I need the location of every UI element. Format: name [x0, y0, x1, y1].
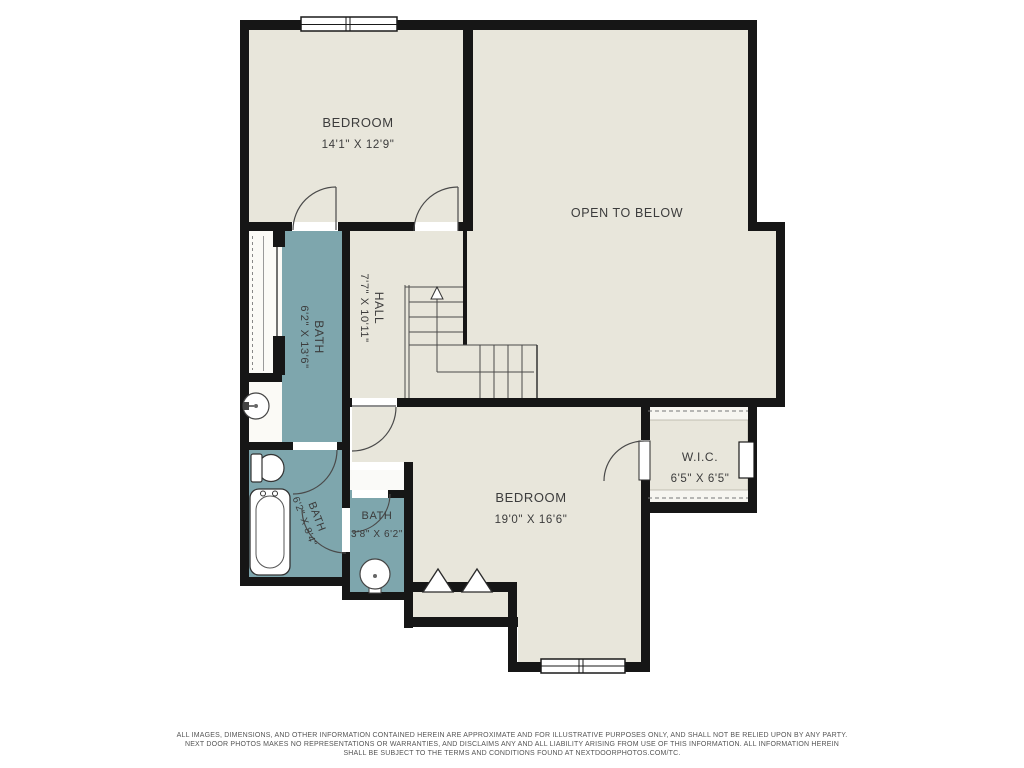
room-dims: 6'5" X 6'5" [671, 473, 730, 485]
room-label: BEDROOM [495, 490, 566, 505]
wic-strip-top [648, 407, 748, 420]
bath-small-doorway [352, 490, 388, 498]
open-to-below-area-ext [748, 230, 776, 398]
disclaimer-line: ALL IMAGES, DIMENSIONS, AND OTHER INFORM… [0, 731, 1024, 740]
room-dims: 19'0" X 16'6" [495, 514, 568, 526]
wic-strip-bottom [648, 490, 748, 502]
window-wic [739, 442, 754, 478]
room-dims: 6'2" X 13'6" [298, 305, 310, 368]
vanity-sink-icon [243, 393, 269, 419]
room-label: HALL [372, 292, 386, 324]
room-dims: 14'1" X 12'9" [322, 139, 395, 151]
room-label: W.I.C. [682, 450, 718, 464]
room-dims: 3'8" X 6'2" [351, 529, 403, 540]
room-label: OPEN TO BELOW [571, 206, 683, 220]
floor-plan-svg: BEDROOM 14'1" X 12'9" OPEN TO BELOW HALL… [0, 0, 1024, 768]
window-bottom [541, 659, 625, 673]
disclaimer-footer: ALL IMAGES, DIMENSIONS, AND OTHER INFORM… [0, 731, 1024, 758]
window-top [301, 17, 397, 31]
bathtub-icon [250, 489, 290, 575]
bedroom-top-doorway [415, 222, 458, 231]
bath-main-doorway [292, 222, 338, 231]
floor-plan-page: BEDROOM 14'1" X 12'9" OPEN TO BELOW HALL… [0, 0, 1024, 768]
bath-main-area [282, 231, 342, 442]
disclaimer-line: SHALL BE SUBJECT TO THE TERMS AND CONDIT… [0, 749, 1024, 758]
disclaimer-line: NEXT DOOR PHOTOS MAKES NO REPRESENTATION… [0, 740, 1024, 749]
toilet-icon [251, 454, 284, 482]
bath-divider-doorway [293, 442, 337, 450]
room-dims: 7'7" X 10'11" [358, 273, 370, 342]
door-leaf [639, 441, 650, 480]
room-label: BATH [312, 320, 326, 354]
bath-small-vestibule [350, 470, 404, 490]
room-label: BEDROOM [322, 115, 393, 130]
chase-area [413, 592, 508, 617]
bath-lower-doorway [342, 508, 350, 552]
room-label: BATH [362, 510, 393, 522]
